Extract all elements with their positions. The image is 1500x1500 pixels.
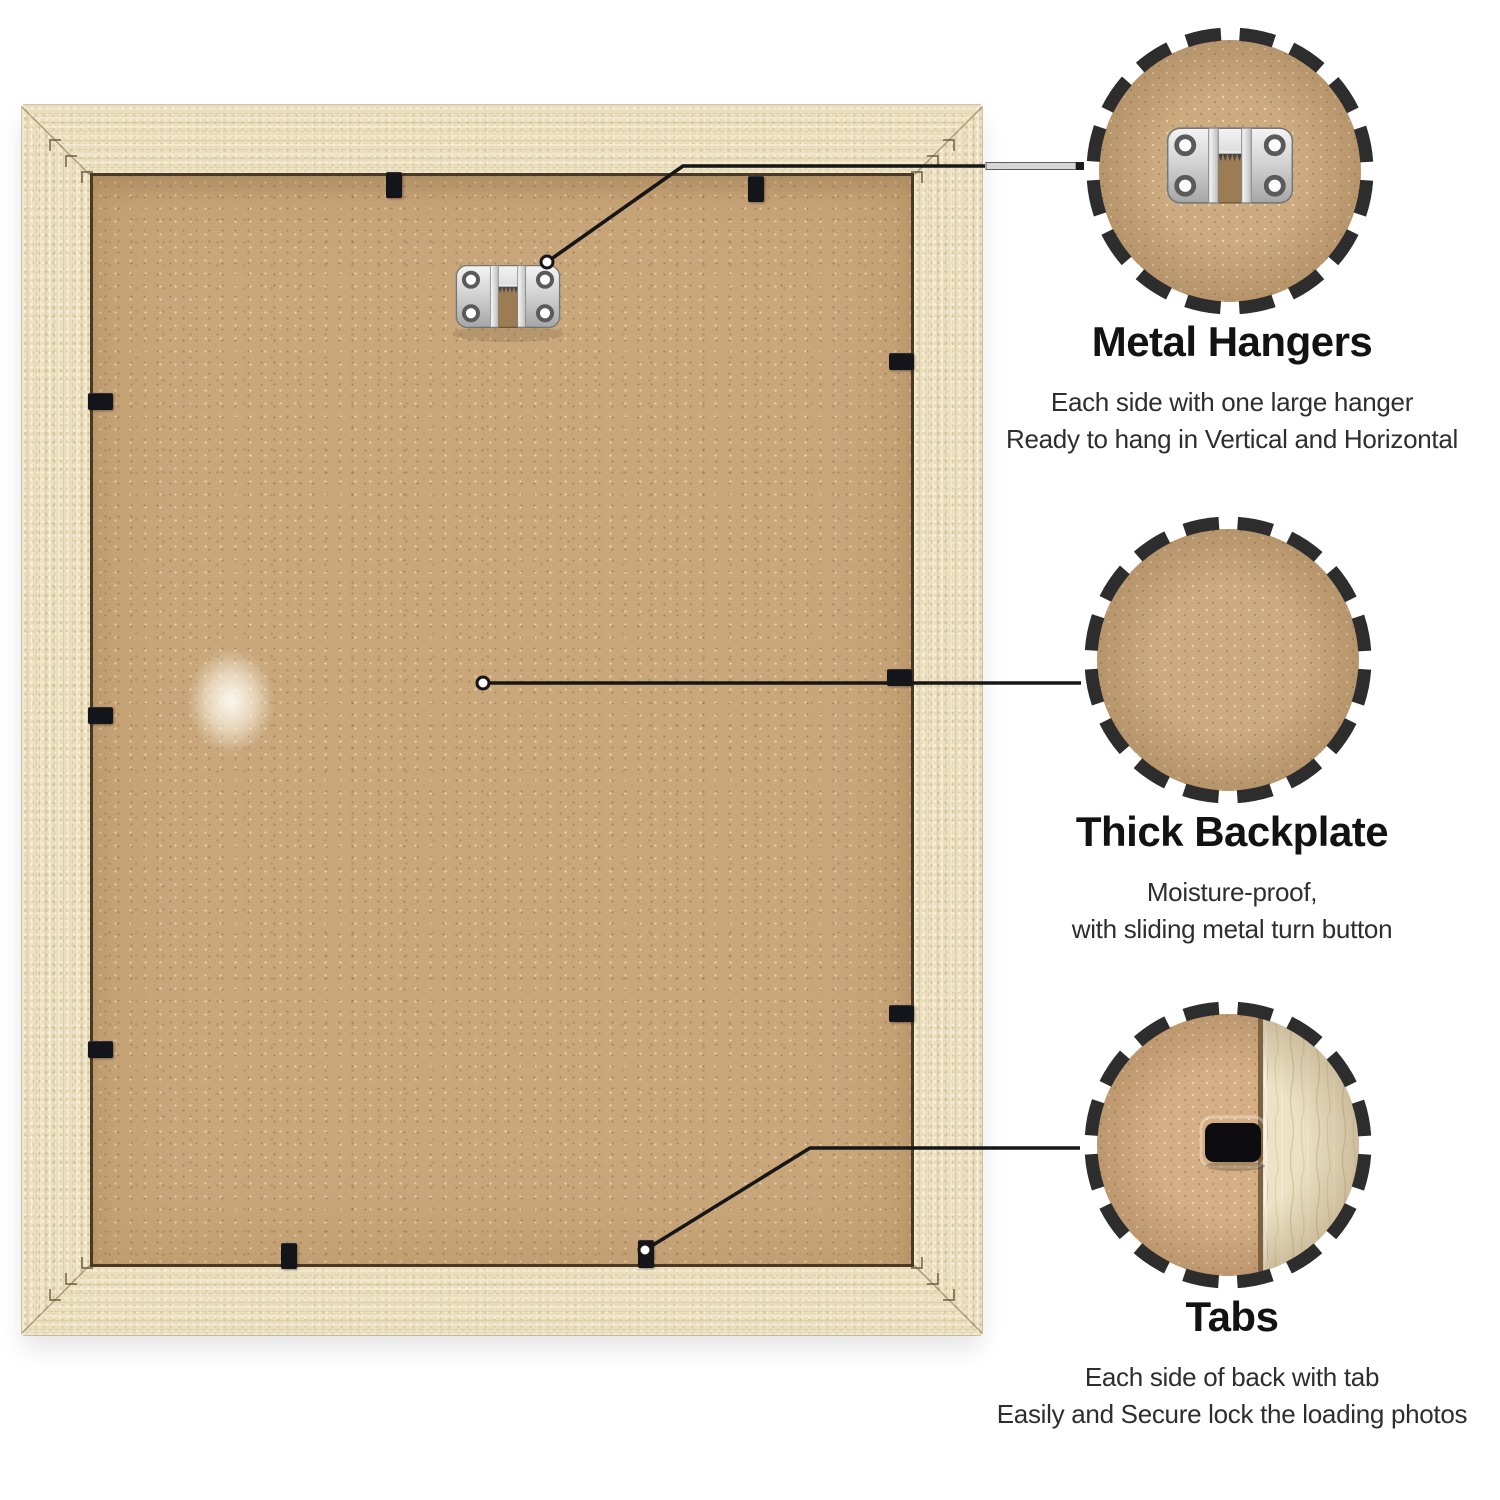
callout-description-line: Ready to hang in Vertical and Horizontal <box>952 421 1500 458</box>
retainer-tab <box>889 353 914 370</box>
retainer-tab <box>889 1005 914 1022</box>
retainer-tab <box>88 707 113 724</box>
frame-top-rail <box>22 105 982 173</box>
retainer-tab <box>638 1240 654 1268</box>
pointer-stick <box>986 163 1076 170</box>
backplate <box>90 173 914 1267</box>
page: { "callouts": [ { "id": "metal-hangers",… <box>0 0 1500 1500</box>
retainer-tab <box>748 176 764 202</box>
frame-bottom-rail <box>22 1267 982 1335</box>
retainer-tab <box>887 669 912 686</box>
retainer-tab <box>88 1041 113 1058</box>
callout-description-line: Each side with one large hanger <box>952 384 1500 421</box>
frame-left-rail <box>22 105 90 1335</box>
product-diagram: Metal Hangers Each side with one large h… <box>0 0 1500 1500</box>
metal-hanger <box>455 263 561 330</box>
callout-description-line: Each side of back with tab <box>952 1359 1500 1396</box>
callout-circle-thick-backplate <box>1078 510 1378 810</box>
retainer-tab <box>386 172 402 198</box>
flash-reflection <box>173 631 289 771</box>
callout-title: Metal Hangers <box>952 318 1500 366</box>
callout-circle-metal-hangers <box>1080 21 1380 321</box>
callout-description-line: Easily and Secure lock the loading photo… <box>952 1396 1500 1433</box>
callout-description-line: with sliding metal turn button <box>952 911 1500 948</box>
retainer-tab <box>88 393 113 410</box>
callout-circle-tabs <box>1078 995 1378 1295</box>
callout-text-thick-backplate: Thick Backplate Moisture-proof, with sli… <box>952 808 1500 948</box>
retainer-tab <box>281 1243 297 1269</box>
callout-text-metal-hangers: Metal Hangers Each side with one large h… <box>952 318 1500 458</box>
callout-title: Tabs <box>952 1293 1500 1341</box>
callout-description-line: Moisture-proof, <box>952 874 1500 911</box>
callout-title: Thick Backplate <box>952 808 1500 856</box>
callout-text-tabs: Tabs Each side of back with tab Easily a… <box>952 1293 1500 1433</box>
frame-right-rail <box>914 105 982 1335</box>
frame-back-photo <box>22 105 982 1335</box>
